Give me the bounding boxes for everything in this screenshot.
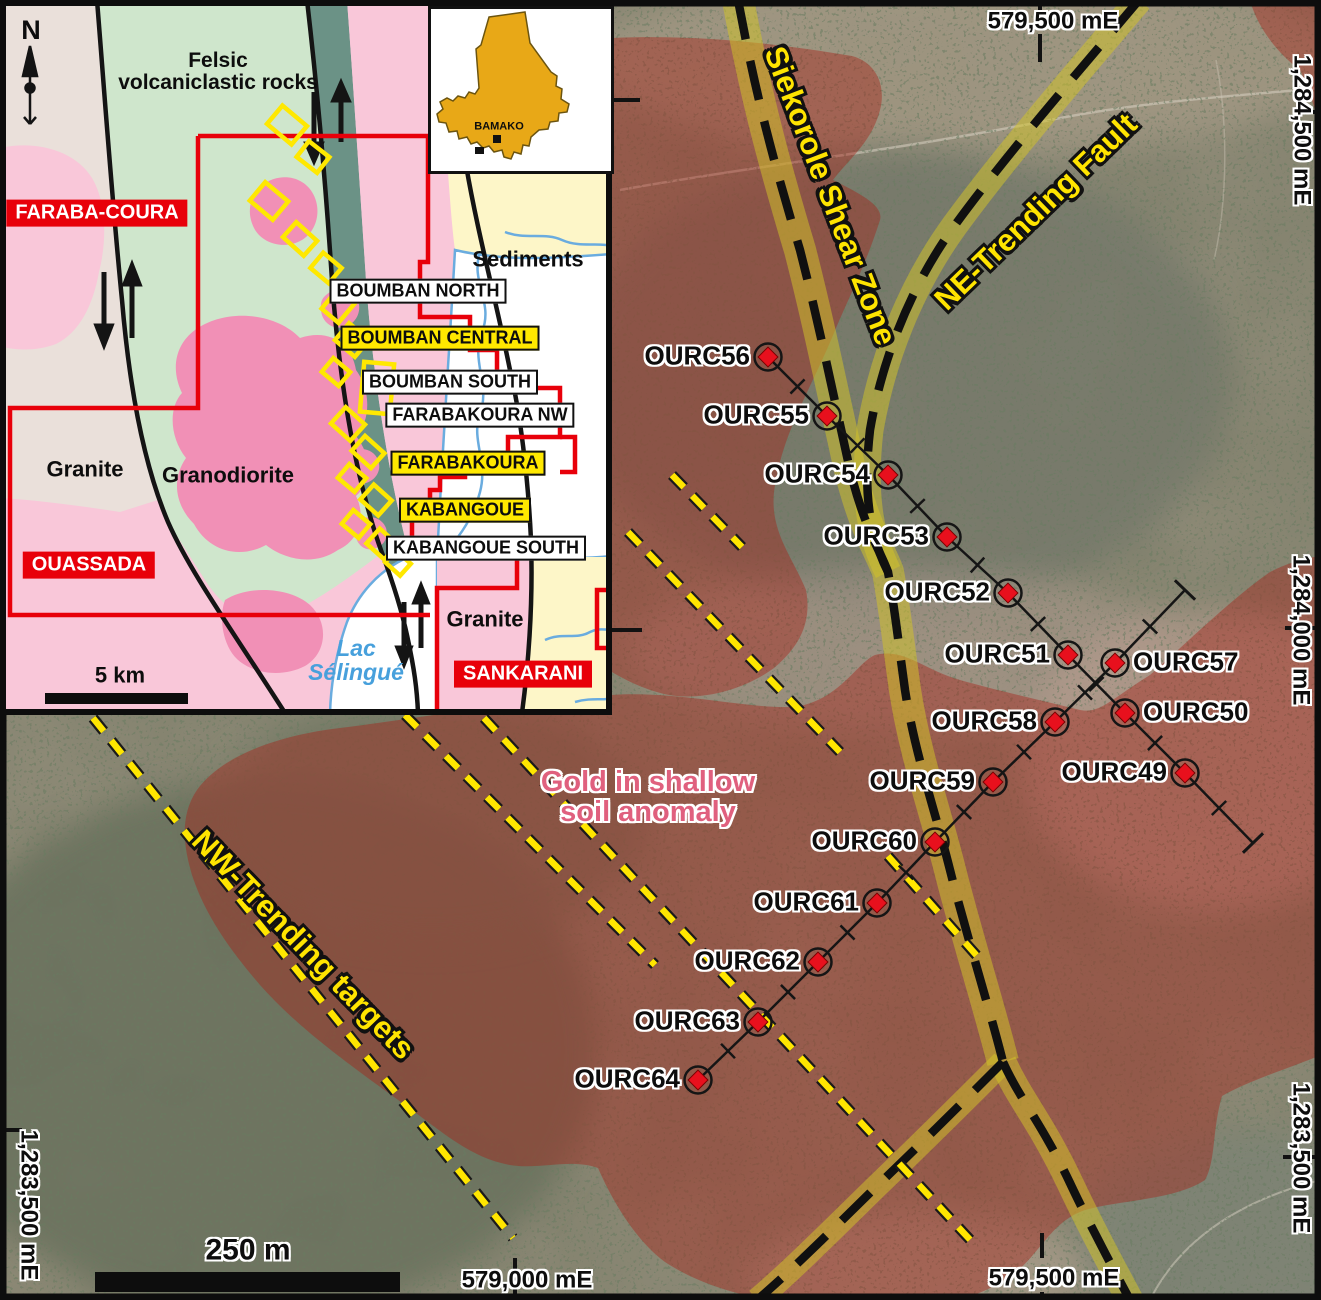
map-scale-bar xyxy=(95,1272,400,1292)
mali-label-layer: BAMAKO xyxy=(431,9,611,171)
bamako-label: BAMAKO xyxy=(474,121,524,132)
exploration-map-figure: 579,500 mE1,284,500 mE1,284,000 mE1,283,… xyxy=(0,0,1321,1300)
inset-scale-bar xyxy=(45,693,188,704)
mali-country-inset: BAMAKO xyxy=(428,6,614,174)
